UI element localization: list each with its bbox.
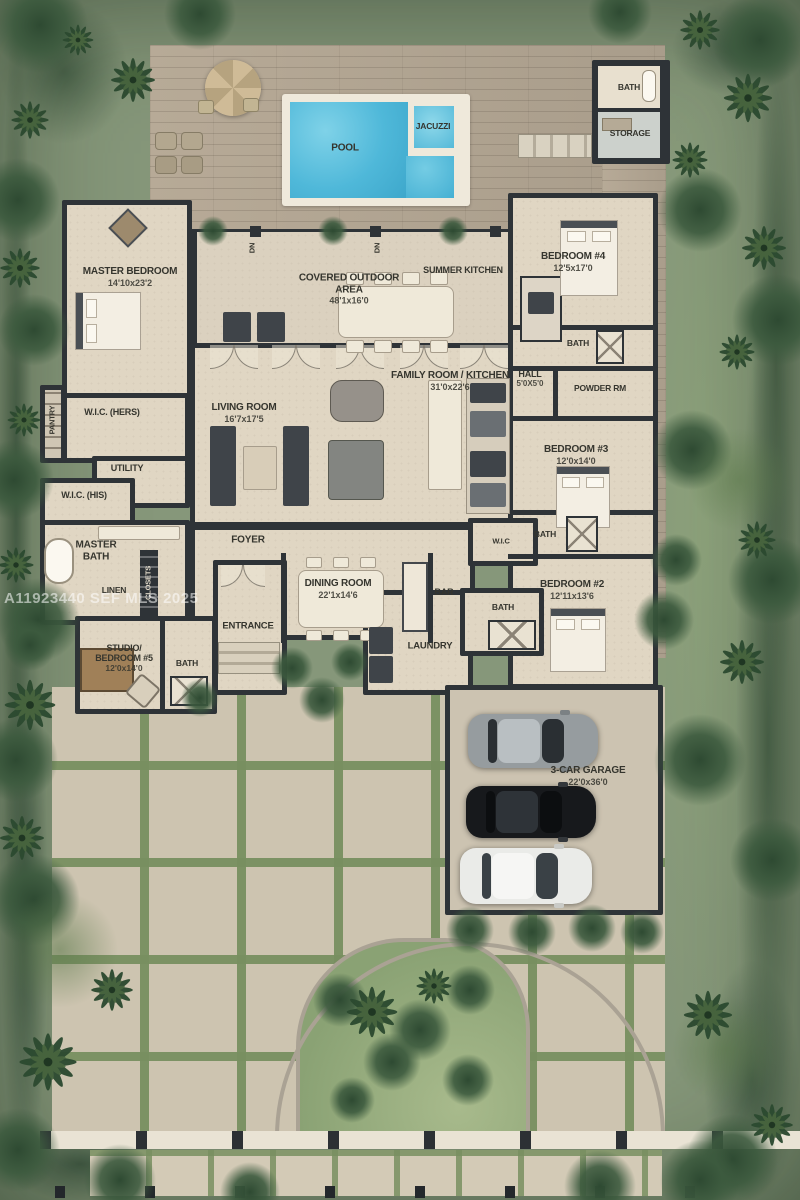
bed-2 (550, 608, 606, 672)
shower-bath3 (566, 516, 598, 552)
wall-studio-bath (160, 616, 165, 714)
shower-bath5 (170, 676, 208, 706)
breakfast-table (330, 380, 384, 422)
pillow (86, 299, 97, 318)
driveway-curve (275, 942, 670, 1148)
pillow (592, 231, 611, 242)
dining-chair (333, 630, 349, 641)
car-mirror (558, 837, 568, 842)
range (470, 411, 506, 437)
car-roof (492, 853, 534, 899)
studio-desk (80, 648, 134, 692)
car-mirror (554, 844, 564, 849)
car-silver (468, 714, 598, 768)
wall-bar-east (428, 553, 433, 643)
mls-watermark: A11923440 SEF MLS 2025 (4, 590, 198, 607)
outdoor-chair (374, 340, 392, 353)
car-windshield (536, 853, 558, 899)
storage-bench (602, 118, 632, 131)
dining-chair (306, 557, 322, 568)
car-roof (496, 791, 538, 833)
lounge-chair (181, 156, 203, 174)
dining-table (298, 570, 384, 628)
street-posts (55, 1186, 765, 1198)
deck-steps (518, 134, 592, 158)
headboard (557, 467, 609, 474)
headboard (551, 609, 605, 616)
car-white (460, 848, 592, 904)
outdoor-chair (346, 272, 364, 285)
patio-column (250, 226, 261, 237)
car-windshield (542, 719, 564, 763)
car-mirror (558, 782, 568, 787)
curb-arc (275, 942, 665, 1148)
car-rear-glass (488, 719, 497, 763)
car-mirror (560, 767, 570, 772)
entrance-steps (218, 642, 280, 674)
media-console (257, 312, 285, 342)
outdoor-table (338, 286, 454, 338)
patio-column (490, 226, 501, 237)
patio-chair (243, 98, 259, 112)
pantry-cab (470, 483, 506, 507)
wall-dining-west (281, 553, 286, 643)
kitchen-counter (466, 378, 510, 514)
headboard (76, 293, 83, 349)
summer-kitchen-counter (520, 276, 562, 342)
wic-hers-room (62, 393, 190, 463)
patio-chair (198, 100, 214, 114)
jacuzzi-water (412, 104, 456, 150)
outdoor-chair (402, 340, 420, 353)
pool-water (290, 102, 408, 198)
car-black (466, 786, 596, 838)
master-tub (44, 538, 74, 584)
wall-powder (553, 366, 558, 420)
pool-bath-tub (642, 70, 656, 102)
car-rear-glass (482, 853, 491, 899)
kitchen-island (428, 380, 462, 490)
master-vanity (98, 526, 180, 540)
patio-column (370, 226, 381, 237)
pillow (581, 619, 600, 630)
media-console (223, 312, 251, 342)
dining-chair (333, 557, 349, 568)
floor-plan-rendering: POOL JACUZZI BATH STORAGE DN DN MASTER B… (0, 0, 800, 1200)
pool-house (592, 60, 670, 164)
car-mirror (560, 710, 570, 715)
coffee-table (243, 446, 277, 490)
lounge-chair (155, 156, 177, 174)
car-rear-glass (486, 791, 495, 833)
grill (528, 292, 554, 314)
master-bed (75, 292, 141, 350)
dining-chair (360, 557, 376, 568)
wall-bath-hall (508, 366, 658, 371)
car-mirror (554, 903, 564, 908)
pillow (567, 231, 586, 242)
wall-hall-b3 (508, 416, 658, 421)
car-windshield (540, 791, 562, 833)
lounge-chair (155, 132, 177, 150)
pillow (586, 477, 604, 488)
outdoor-chair (430, 272, 448, 285)
outdoor-chair (430, 340, 448, 353)
living-sofa (210, 426, 236, 506)
wall-bath3-b2 (508, 554, 658, 559)
dining-chair (306, 630, 322, 641)
pool-water-wing (406, 156, 454, 198)
family-sectional (328, 440, 384, 500)
outdoor-chair (402, 272, 420, 285)
shower-bath4 (596, 330, 624, 364)
washer (369, 627, 393, 654)
front-fence (40, 1131, 800, 1149)
outdoor-chair (346, 340, 364, 353)
lounge-chair (181, 132, 203, 150)
bed-4 (560, 220, 618, 296)
oven-stack (470, 451, 506, 477)
wall-living-west (190, 393, 195, 527)
shower-garage-bath (488, 620, 536, 650)
living-sofa (283, 426, 309, 506)
outdoor-chair (374, 272, 392, 285)
pantry-closet (40, 385, 66, 463)
bar-counter (402, 562, 428, 632)
car-roof (498, 719, 540, 763)
pillow (86, 324, 97, 343)
fridge (470, 383, 506, 403)
pillow (562, 477, 580, 488)
pillow (556, 619, 575, 630)
dryer (369, 656, 393, 683)
headboard (561, 221, 617, 228)
